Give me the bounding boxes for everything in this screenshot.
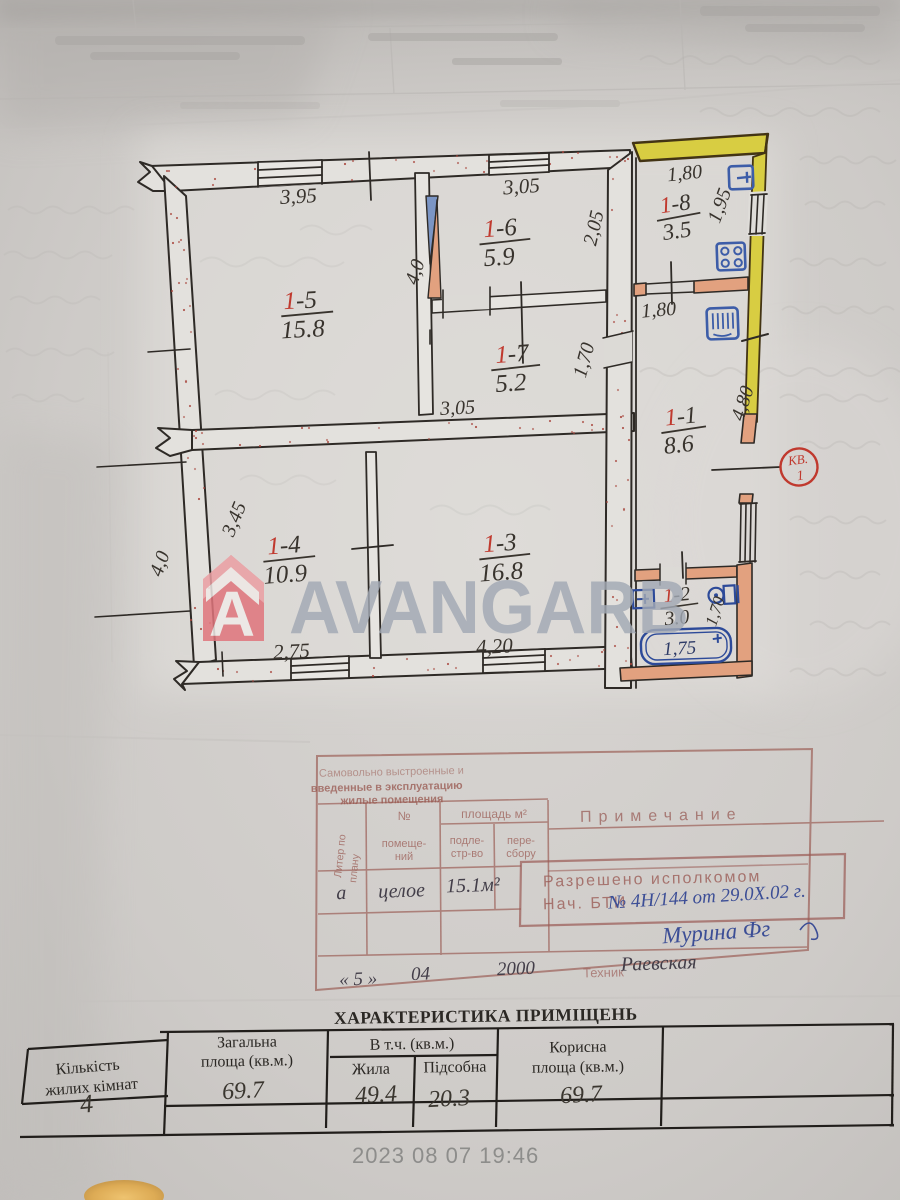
svg-text:площа (кв.м.): площа (кв.м.) [532,1058,624,1077]
svg-text:69.7: 69.7 [559,1081,603,1109]
svg-text:площа (кв.м.): площа (кв.м.) [201,1052,293,1071]
svg-text:3,05: 3,05 [501,173,540,200]
svg-text:1,80: 1,80 [640,298,677,323]
svg-text:пере-: пере- [507,835,535,847]
svg-text:Жила: Жила [352,1061,390,1079]
svg-text:3,05: 3,05 [439,396,476,420]
svg-text:« 5 »: « 5 » [339,968,378,990]
svg-text:49.4: 49.4 [354,1081,397,1109]
svg-text:1-1: 1-1 [664,402,699,431]
svg-text:целое: целое [378,879,426,903]
svg-text:Примечание: Примечание [580,806,743,826]
svg-text:1-3: 1-3 [482,529,517,558]
svg-text:3.5: 3.5 [660,216,693,245]
svg-text:2000: 2000 [497,958,536,980]
svg-text:сбору: сбору [506,848,536,860]
svg-text:1-8: 1-8 [658,189,692,218]
svg-text:стр-во: стр-во [451,848,483,860]
svg-text:5.2: 5.2 [494,369,527,398]
svg-text:площадь м²: площадь м² [461,807,527,821]
svg-text:04: 04 [411,963,431,985]
svg-text:Корисна: Корисна [549,1039,606,1057]
svg-text:ХАРАКТЕРИСТИКА ПРИМІЩЕНЬ: ХАРАКТЕРИСТИКА ПРИМІЩЕНЬ [334,1004,638,1028]
svg-text:1-4: 1-4 [266,531,301,560]
svg-text:2023 08 07 19:46: 2023 08 07 19:46 [352,1143,539,1168]
svg-text:A: A [209,578,255,650]
svg-text:5.9: 5.9 [483,243,517,272]
svg-text:а: а [336,882,347,904]
svg-text:ний: ний [395,851,413,863]
svg-text:15.8: 15.8 [280,315,326,344]
svg-text:8.6: 8.6 [663,431,696,460]
svg-text:20.3: 20.3 [427,1085,470,1113]
svg-text:В т.ч. (кв.м.): В т.ч. (кв.м.) [369,1035,454,1053]
svg-text:3,95: 3,95 [278,183,317,209]
svg-text:1,80: 1,80 [666,161,703,187]
svg-text:1-7: 1-7 [494,340,531,369]
svg-text:Раевская: Раевская [619,951,697,976]
svg-text:жилые помещения: жилые помещения [339,793,443,807]
svg-text:1-6: 1-6 [483,214,519,243]
svg-text:1-5: 1-5 [283,286,318,315]
svg-text:КВ.: КВ. [786,451,809,469]
svg-text:15.1м²: 15.1м² [446,874,501,898]
svg-text:69.7: 69.7 [221,1077,265,1105]
svg-text:подле-: подле- [450,835,485,847]
svg-text:№: № [398,809,411,823]
svg-text:помеще-: помеще- [382,838,427,850]
svg-text:Техник: Техник [583,964,624,980]
svg-text:Загальна: Загальна [217,1033,277,1051]
svg-text:AVANGARB: AVANGARB [289,565,689,649]
svg-text:Підсобна: Підсобна [423,1058,486,1076]
